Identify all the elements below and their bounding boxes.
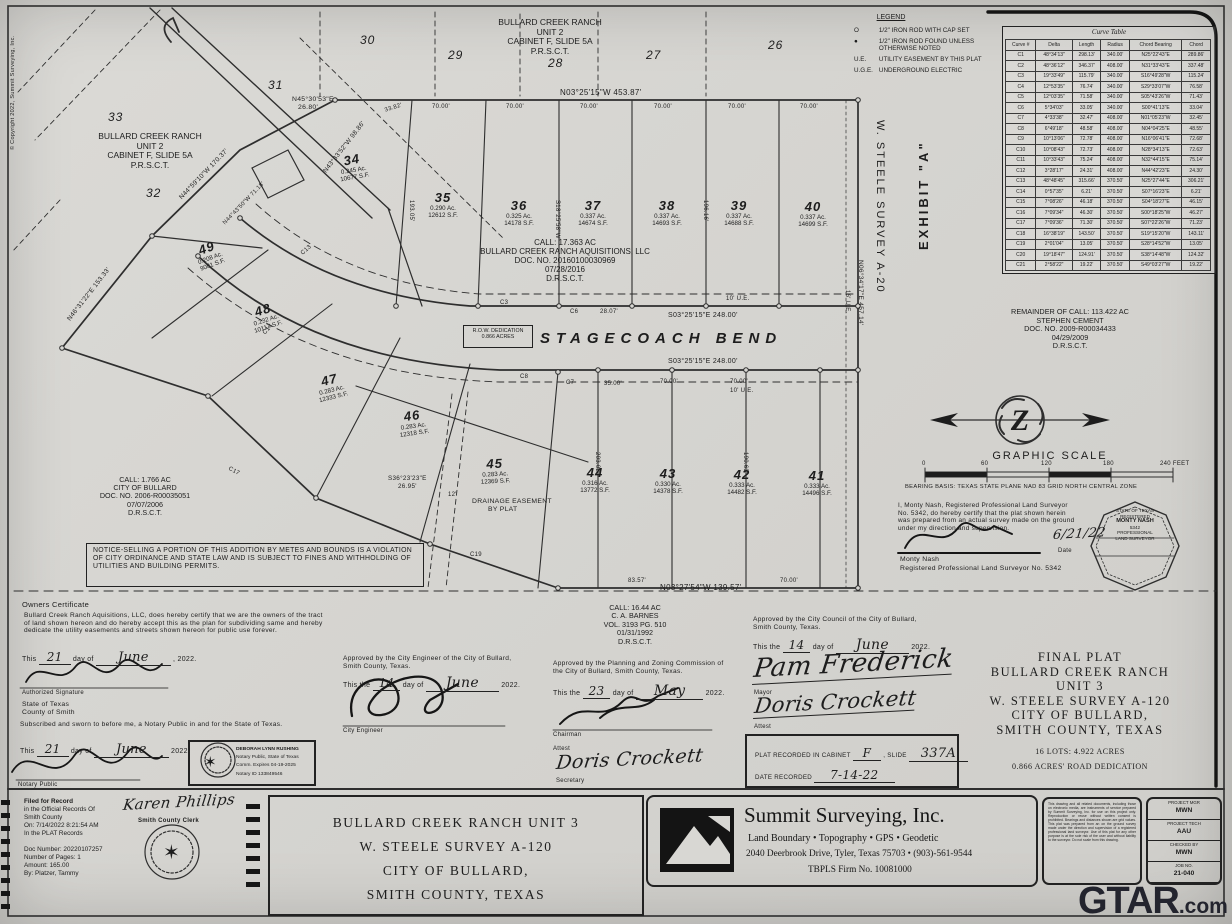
curve-table-title: Curve Table (1003, 28, 1215, 36)
ue10-lower: 10' U.E. (730, 388, 754, 394)
bearing-basis: BEARING BASIS: TEXAS STATE PLANE NAD 83 … (905, 484, 1137, 490)
table-row: ●1/2" IRON ROD FOUND UNLESS OTHERWISE NO… (852, 37, 988, 53)
owners-date-line: This 21 day of June , 2022. (22, 650, 197, 665)
table-row: C1816°38'19"143.50'370.50'S19°15'20"W143… (1006, 229, 1211, 240)
street-name: STAGECOACH BEND (540, 330, 782, 347)
unit2-lot-29: 29 (448, 48, 463, 62)
dim-70-i: 70.00' (730, 379, 748, 385)
call-acquisitions: CALL: 17.363 ACBULLARD CREEK RANCH AQUIS… (450, 238, 680, 283)
bearing-east: N06°34'17"E 457.14' (857, 260, 864, 326)
surveyor-certification: I, Monty Nash, Registered Professional L… (898, 502, 1078, 532)
table-row: C2019°18'47"124.91'370.50'S38°14'48"W124… (1006, 250, 1211, 261)
notice-text: NOTICE-SELLING A PORTION OF THIS ADDITIO… (93, 547, 415, 572)
surveyor-name: Monty Nash (900, 556, 939, 563)
table-row: C192°01'04"13.05'370.50'S28°14'52"W13.05… (1006, 239, 1211, 250)
lot-40-label: 40 0.337 Ac.14699 S.F. (780, 199, 846, 228)
engineer-approval-line1: Approved by the City Engineer of the Cit… (343, 655, 511, 662)
unit2-lot-33: 33 (108, 110, 123, 124)
summit-name: Summit Surveying, Inc. (744, 803, 945, 828)
notary-public-label: Notary Public (18, 782, 58, 788)
unit2-lot-28: 28 (548, 56, 563, 70)
curve-ref-c8: C8 (520, 374, 528, 380)
scale-120: 120 (1041, 461, 1052, 467)
table-row: PROJECT MGRMWN (1148, 799, 1220, 819)
exhibit-a-label: EXHIBIT "A" (916, 140, 931, 250)
notary-acknowledgment: Subscribed and sworn to before me, a Not… (20, 721, 300, 729)
legend: O1/2" IRON ROD WITH CAP SET●1/2" IRON RO… (850, 24, 990, 77)
table-row: C86°49'18"48.58'408.00'N04°04'25"E48.55' (1006, 124, 1211, 135)
table-row: C157°08'26"46.18'370.50'S04°18'27"E46.15… (1006, 197, 1211, 208)
table-row: O1/2" IRON ROD WITH CAP SET (852, 26, 988, 35)
table-row: C910°13'06"72.78'408.00'N16°06'41"E72.68… (1006, 134, 1211, 145)
council-approval-line1: Approved by the City Council of the City… (753, 616, 917, 623)
copyright-edge-note: © Copyright 2022, Summit Surveying, Inc. (10, 36, 16, 151)
call-city-of-bullard: CALL: 1.766 ACCITY OF BULLARD DOC. NO. 2… (70, 476, 220, 517)
lot-45-label: 45 0.283 Ac.12369 S.F. (461, 454, 528, 486)
dim-70-h: 70.00' (660, 379, 678, 385)
dim-70-f: 70.00' (800, 104, 818, 110)
bearing-street-n: S03°25'15"E 248.00' (668, 312, 738, 319)
scale-bar (925, 468, 1173, 482)
table-row: C1010°08'43"72.73'408.00'N28°34'13"E72.6… (1006, 145, 1211, 156)
dim-70-a: 70.00' (432, 104, 450, 110)
bearing-bottom: N03°27'54"W 139.57' (660, 583, 742, 592)
scale-0: 0 (922, 461, 926, 467)
curve-ref-c3: C3 (500, 300, 508, 306)
engineer-approval-line2: Smith County, Texas. (343, 663, 411, 670)
table-row: CHECKED BYMWN (1148, 840, 1220, 861)
unit2-lot-27: 27 (646, 48, 661, 62)
unit3-title-box: BULLARD CREEK RANCH UNIT 3 W. STEELE SUR… (268, 795, 644, 916)
scale-240: 240 FEET (1160, 461, 1189, 467)
call-barnes: CALL: 16.44 ACC. A. BARNES VOL. 3193 PG.… (560, 604, 710, 646)
lot-36-label: 36 0.325 Ac.14178 S.F. (486, 198, 552, 227)
row-dedication-box: R.O.W. DEDICATION 0.866 ACRES (463, 325, 533, 348)
table-row: C74°33'38"32.47'408.00'N01°05'23"W32.45' (1006, 113, 1211, 124)
bearing-street-s: S03°25'15"E 248.00' (668, 358, 738, 365)
dim-196: 196.16' (702, 200, 708, 222)
curve-ref-c7: C7 (566, 380, 574, 386)
table-row: U.G.E.UNDERGROUND ELECTRIC (852, 66, 988, 75)
pz-date-line: This the 23 day of May 2022. (553, 683, 725, 699)
table-row: C65°34'03"33.05'340.00'S00°41'13"E33.04' (1006, 103, 1211, 114)
drainage-easement-line2: BY PLAT (488, 506, 517, 513)
dim-190: 190.63' (742, 452, 748, 474)
unit2-lot-31: 31 (268, 78, 283, 92)
secretary-label: Secretary (556, 778, 584, 784)
table-row: C412°53'35"76.74'340.00'S29°33'07"W76.58… (1006, 82, 1211, 93)
table-row: C1110°33'43"75.24'408.00'N32°44'15"E75.1… (1006, 155, 1211, 166)
curve-ref-c19: C19 (470, 552, 482, 558)
notary-date-line: This 21 day of June 2022. (20, 742, 190, 757)
fine-print-box: This drawing and all related documents, … (1042, 797, 1142, 885)
table-row: C319°33'49"115.79'340.00'S16°49'28"W115.… (1006, 71, 1211, 82)
unit2-label-top: BULLARD CREEK RANCH UNIT 2 CABINET F, SL… (455, 18, 645, 56)
dim-70-e: 70.00' (728, 104, 746, 110)
surveyor-title: Registered Professional Land Surveyor No… (900, 565, 1062, 572)
dim-70-g: 70.00' (780, 578, 798, 584)
unit2-lot-30: 30 (360, 33, 375, 47)
table-row: C140°57'35"6.21'370.50'S07°16'23"E6.21' (1006, 187, 1211, 198)
bearing-top: N03°25'15"W 453.87' (560, 88, 642, 97)
scale-60: 60 (981, 461, 988, 467)
authorized-signature-label: Authorized Signature (22, 690, 84, 696)
table-row: C512°03'35"71.58'340.00'S05°43'26"W71.43… (1006, 92, 1211, 103)
fine-print-text: This drawing and all related documents, … (1048, 802, 1136, 880)
notary-stamp-text: DEBORAH LYNN RUSHING Notary Public, Stat… (236, 746, 312, 779)
surveyor-date-label: Date (1058, 548, 1072, 554)
curve-table-rows: C148°34'13"298.13'340.00'N25°22'43"E289.… (1006, 50, 1211, 271)
table-row: PROJECT TECHAAU (1148, 819, 1220, 840)
lot-39-label: 39 0.337 Ac.14688 S.F. (706, 198, 772, 227)
curve-table-box: Curve Table Curve # Delta Length Radius … (1002, 26, 1216, 274)
ue10-upper: 10' U.E. (726, 296, 750, 302)
chairman-label: Chairman (553, 732, 581, 738)
lot-37-label: 37 0.337 Ac.14674 S.F. (560, 198, 626, 227)
dim-70-d: 70.00' (654, 104, 672, 110)
council-attest-label: Attest (754, 724, 771, 730)
project-info-box: PROJECT MGRMWNPROJECT TECHAAUCHECKED BYM… (1146, 797, 1222, 885)
curve-table: Curve # Delta Length Radius Chord Bearin… (1005, 39, 1211, 271)
state-of-texas: State of Texas (22, 701, 69, 708)
dim-12: 12' (448, 492, 457, 498)
lot-43-label: 43 0.330 Ac.14378 S.F. (635, 466, 701, 495)
table-row: C248°36'12"346.37'408.00'N31°33'43"E337.… (1006, 61, 1211, 72)
dim-2807: 28.07' (600, 309, 618, 315)
table-row: C123°28'17"24.31'408.00'N44°42'23"E24.30… (1006, 166, 1211, 177)
dim-203: 203.02' (594, 452, 600, 474)
notice-box: NOTICE-SELLING A PORTION OF THIS ADDITIO… (86, 543, 424, 587)
lot-38-label: 38 0.337 Ac.14693 S.F. (634, 198, 700, 227)
bearing-ne1-len: 26.80' (298, 104, 318, 111)
pz-approval-line2: the City of Bullard, Smith County, Texas… (553, 668, 683, 675)
curve-table-header: Curve # Delta Length Radius Chord Bearin… (1006, 40, 1211, 51)
final-plat-title: FINAL PLAT BULLARD CREEK RANCH UNIT 3 W.… (975, 650, 1185, 774)
engineer-date-line: This the 14 day of June 2022. (343, 675, 520, 691)
summit-firm-number: TBPLS Firm No. 10081000 (808, 865, 912, 875)
survey-line-label: W. STEELE SURVEY A-20 (874, 120, 886, 294)
summit-logo (660, 808, 734, 872)
table-row: C177°09'36"71.30'370.50'S07°22'26"W71.23… (1006, 218, 1211, 229)
scale-180: 180 (1103, 461, 1114, 467)
table-row: U.E.UTILITY EASEMENT BY THIS PLAT (852, 55, 988, 64)
legend-table: O1/2" IRON ROD WITH CAP SET●1/2" IRON RO… (850, 24, 990, 77)
owners-certificate-body: Bullard Creek Ranch Aquisitions, LLC, do… (24, 612, 324, 635)
unit2-lot-32: 32 (146, 186, 161, 200)
filing-comb-left (1, 792, 10, 917)
dim-35: 35.00' (604, 381, 622, 387)
bearing-ne1: N45°30'53"E (292, 96, 334, 103)
dim-8357: 83.57' (628, 578, 646, 584)
table-row: C212°58'22"19.22'370.50'S49°03'27"W19.22… (1006, 260, 1211, 271)
bearing-se1-len: 26.95' (398, 483, 417, 490)
project-info-table: PROJECT MGRMWNPROJECT TECHAAUCHECKED BYM… (1148, 799, 1220, 883)
call-remainder: REMAINDER OF CALL: 113.422 ACSTEPHEN CEM… (960, 308, 1180, 351)
gtar-watermark: GTAR.com (1078, 880, 1228, 923)
curve-ref-c6: C6 (570, 309, 578, 315)
pz-approval-line1: Approved by the Planning and Zoning Comm… (553, 660, 723, 667)
dim-70-b: 70.00' (506, 104, 524, 110)
lot-35-label: 35 0.290 Ac.12612 S.F. (410, 190, 476, 219)
notary-stamp-box: ✶ DEBORAH LYNN RUSHING Notary Public, St… (188, 740, 316, 786)
city-engineer-label: City Engineer (343, 728, 383, 734)
ue16-east: 16' U.E. (844, 290, 850, 314)
table-row: C1348°48'45"315.66'370.50'N25°27'44"E306… (1006, 176, 1211, 187)
summit-surveying-box: Summit Surveying, Inc. Land Boundary • T… (646, 795, 1038, 887)
table-row: C167°09'34"46.30'370.50'S00°18'25"W46.27… (1006, 208, 1211, 219)
divider-bearing-1: S18°25'58"W (554, 200, 560, 239)
table-row: C148°34'13"298.13'340.00'N25°22'43"E289.… (1006, 50, 1211, 61)
filing-comb-right (246, 796, 260, 895)
notary-stamp-star: ✶ (204, 753, 217, 771)
summit-address: 2040 Deerbrook Drive, Tyler, Texas 75703… (746, 849, 972, 859)
filed-for-record-block: Filed for Record in the Official Records… (24, 798, 103, 878)
county-clerk-label: Smith County Clerk (138, 818, 199, 824)
legend-title: LEGEND (856, 14, 926, 21)
pl.at-recorded-box: PLAT RECORDED IN CABINET F , SLIDE 337A … (745, 734, 959, 788)
summit-services: Land Boundary • Topography • GPS • Geode… (748, 833, 938, 844)
county-of-smith: County of Smith (22, 709, 75, 716)
recorded-cabinet-line: PLAT RECORDED IN CABINET F , SLIDE 337A (755, 746, 968, 761)
scanned-plat-sheet: { "sheet": { "watermark_g": "GTAR", "wat… (0, 0, 1232, 924)
unit2-lot-26: 26 (768, 38, 783, 52)
surveyor-seal-text: STATE OF TEXAS REGISTERED MONTY NASH 534… (1093, 508, 1177, 542)
drainage-easement-line1: DRAINAGE EASEMENT (472, 498, 552, 505)
dim-193: 193.05' (408, 200, 414, 222)
dim-70-c: 70.00' (580, 104, 598, 110)
lot-41-label: 41 0.333 Ac.14496 S.F. (784, 468, 850, 497)
council-approval-line2: Smith County, Texas. (753, 624, 821, 631)
bearing-se1: S36°23'23"E (388, 475, 427, 482)
county-clerk-seal-star: ✶ (163, 840, 180, 865)
recorded-date-line: DATE RECORDED 7-14-22 (755, 768, 895, 782)
compass-letter: Z (1000, 404, 1040, 438)
owners-certificate-heading: Owners Certificate (22, 600, 89, 609)
